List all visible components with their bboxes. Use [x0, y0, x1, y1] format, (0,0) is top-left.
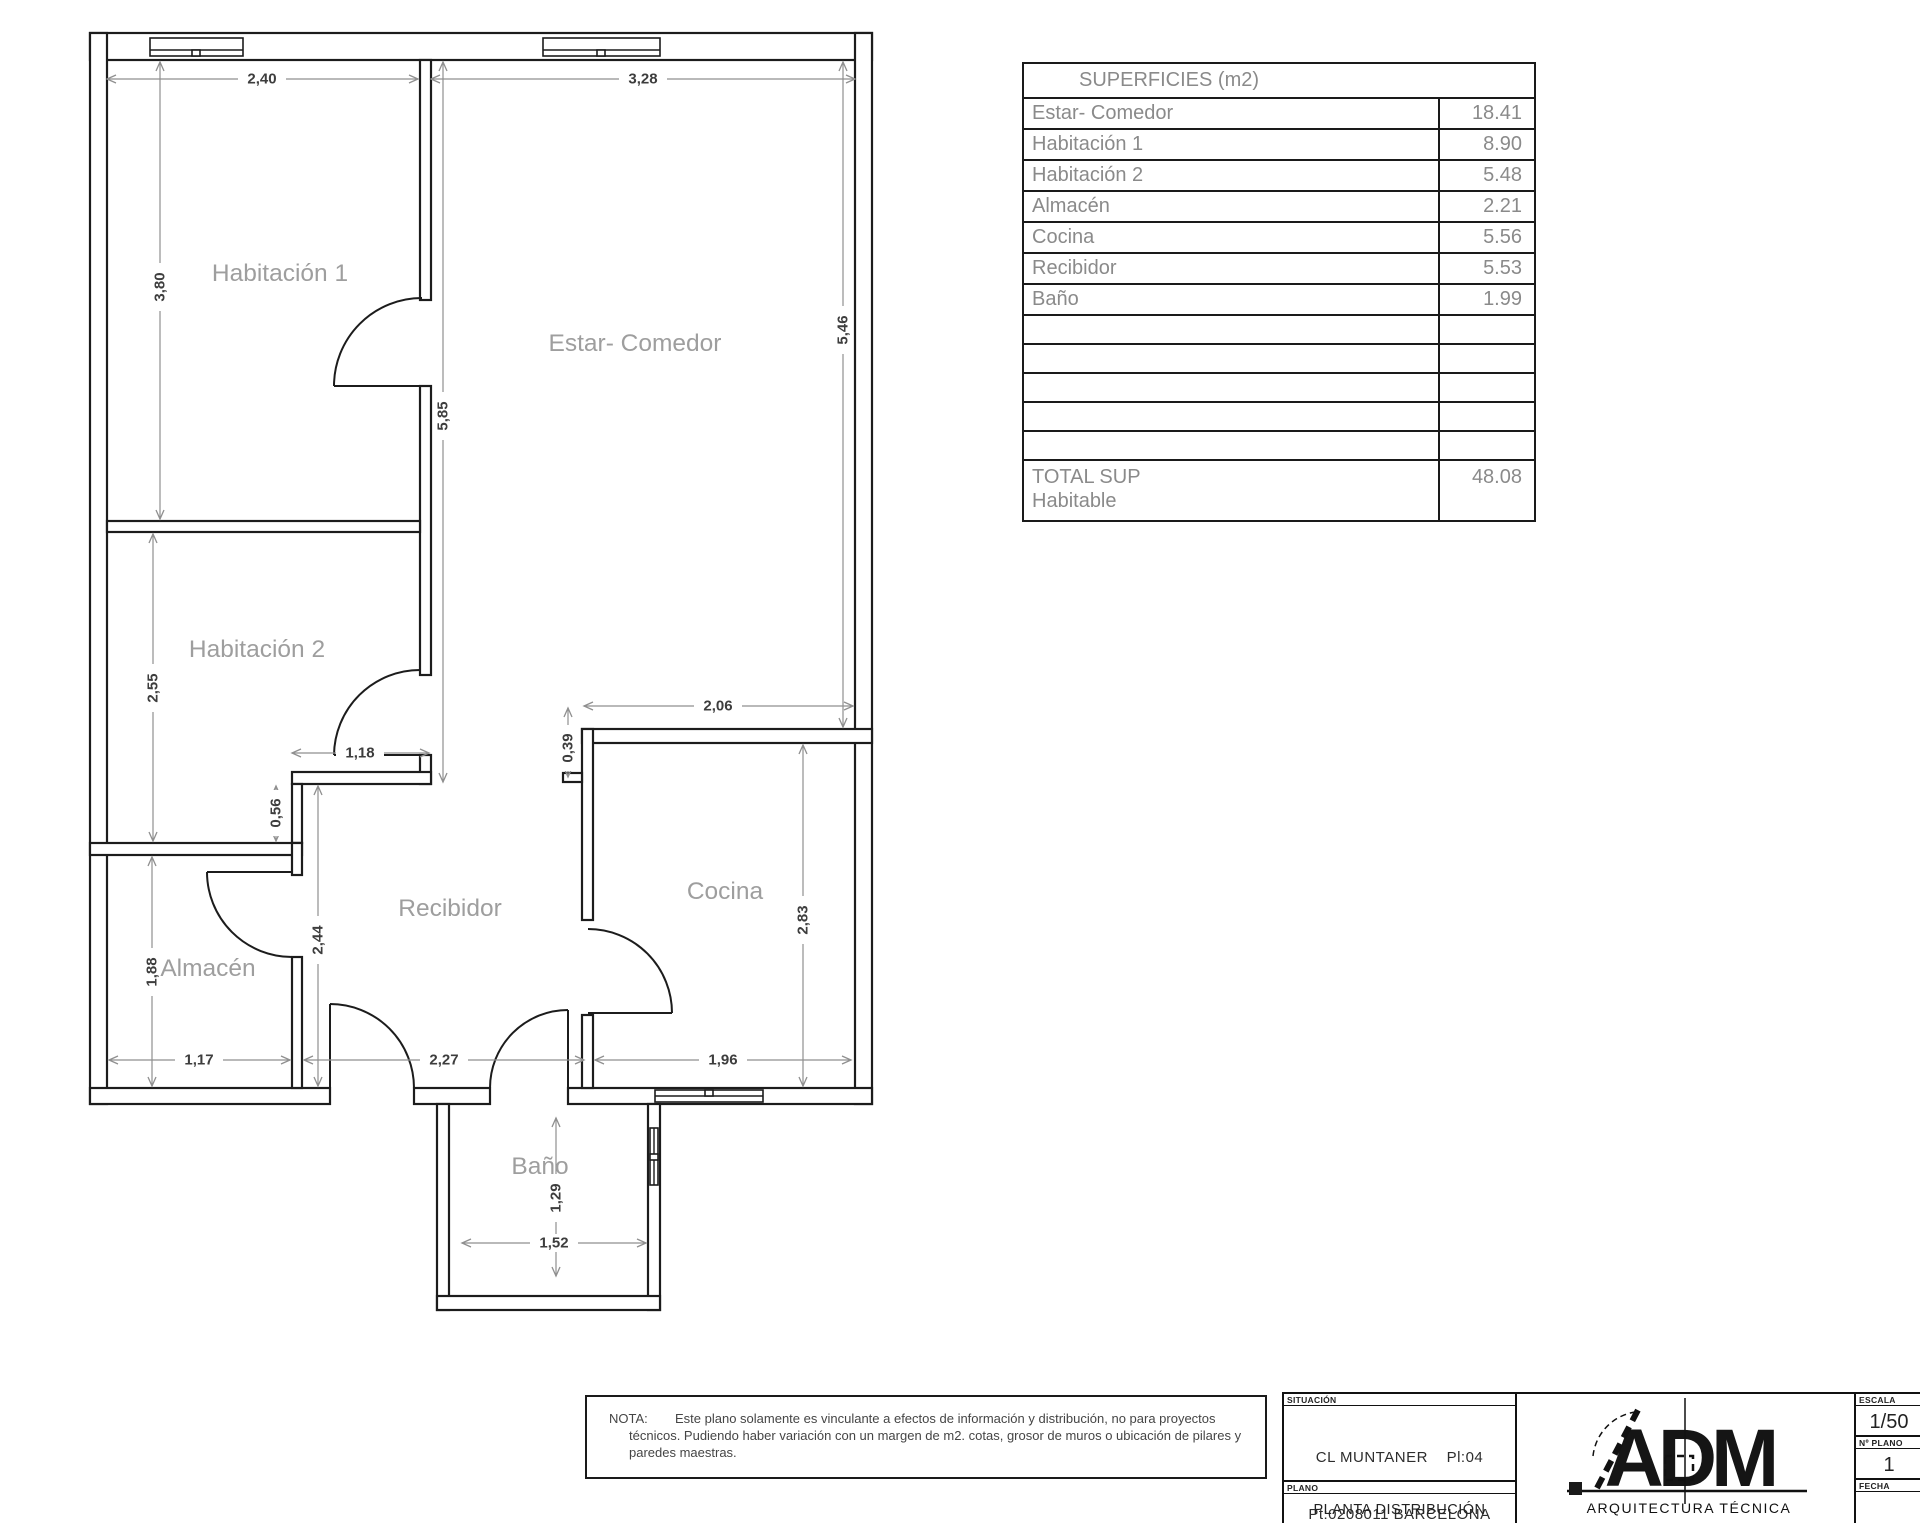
- dimension: 2,06: [584, 697, 853, 715]
- door-habitacion1: [334, 298, 422, 386]
- escala-label: ESCALA: [1856, 1394, 1920, 1406]
- svg-text:0,56: 0,56: [268, 798, 285, 827]
- svg-text:5,46: 5,46: [835, 315, 852, 344]
- svg-text:0,39: 0,39: [560, 733, 577, 762]
- situacion-label: SITUACIÓN: [1284, 1394, 1515, 1406]
- exterior-walls: [90, 33, 872, 1310]
- window: [543, 38, 660, 56]
- svg-text:3,80: 3,80: [152, 272, 169, 301]
- table-row: Recibidor5.53: [1024, 254, 1534, 285]
- window: [655, 1090, 763, 1102]
- company-logo: ADM ARQUITECTURA TÉCNICA: [1517, 1394, 1856, 1523]
- dimension: 1,18: [292, 744, 429, 762]
- svg-text:1,17: 1,17: [184, 1052, 213, 1069]
- num-plano-value: 1: [1856, 1449, 1920, 1478]
- table-row-total: TOTAL SUPHabitable 48.08: [1024, 461, 1534, 520]
- dimension: 5,85: [434, 62, 452, 782]
- svg-text:1,29: 1,29: [548, 1183, 565, 1212]
- room-label: Cocina: [687, 878, 764, 905]
- room-label: Recibidor: [398, 895, 502, 922]
- note-box: NOTA: Este plano solamente es vinculante…: [585, 1395, 1267, 1479]
- door-almacen: [207, 872, 292, 957]
- dimension: 1,88: [143, 857, 161, 1086]
- adm-logo-icon: ADM ARQUITECTURA TÉCNICA: [1517, 1394, 1854, 1523]
- svg-text:1,88: 1,88: [144, 957, 161, 986]
- dimension: 1,29: [547, 1118, 565, 1276]
- floor-plan: 2,40 3,28 3,80 5,85 5,46 2,55 1,18 0,56 …: [0, 0, 960, 1340]
- num-plano-label: Nº PLANO: [1856, 1437, 1920, 1449]
- svg-text:2,83: 2,83: [795, 905, 812, 934]
- table-row-empty: [1024, 374, 1534, 403]
- room-label: Baño: [511, 1153, 568, 1180]
- dimension: 1,17: [109, 1051, 290, 1069]
- svg-text:2,40: 2,40: [247, 71, 276, 88]
- dimension: 2,55: [144, 534, 162, 841]
- note-line: paredes maestras.: [629, 1445, 737, 1460]
- dimension: 0,39: [559, 708, 577, 777]
- svg-text:2,55: 2,55: [145, 673, 162, 702]
- dimension: 3,28: [431, 70, 855, 88]
- fecha-value: [1856, 1492, 1920, 1521]
- room-labels: Habitación 1 Estar- Comedor Habitación 2…: [160, 260, 763, 1180]
- svg-text:5,85: 5,85: [435, 401, 452, 430]
- dimension: 1,96: [595, 1051, 851, 1069]
- table-row: Cocina5.56: [1024, 223, 1534, 254]
- svg-text:2,44: 2,44: [310, 925, 327, 955]
- note-label: NOTA:: [609, 1411, 648, 1426]
- table-row-empty: [1024, 403, 1534, 432]
- svg-text:2,06: 2,06: [703, 698, 732, 715]
- window: [150, 38, 243, 56]
- plano-label: PLANO: [1284, 1482, 1515, 1494]
- plano-section: PLANO PLANTA DISTRIBUCIÓN: [1284, 1480, 1515, 1518]
- svg-text:3,28: 3,28: [628, 71, 657, 88]
- table-row: Estar- Comedor18.41: [1024, 99, 1534, 130]
- door-entry: [330, 1004, 414, 1088]
- title-block: SITUACIÓN CL MUNTANER Pl:04 Pt:0208011 B…: [1282, 1392, 1920, 1523]
- dimension: 5,46: [834, 62, 852, 727]
- window: [650, 1128, 658, 1185]
- door-cocina: [588, 929, 672, 1013]
- dimension: 1,52: [462, 1234, 646, 1252]
- dimension: 2,40: [107, 70, 418, 88]
- note-line: Este plano solamente es vinculante a efe…: [675, 1411, 1216, 1426]
- door-bano: [490, 1010, 568, 1088]
- surfaces-table: SUPERFICIES (m2) Estar- Comedor18.41 Hab…: [1022, 62, 1536, 522]
- svg-text:1,96: 1,96: [708, 1052, 737, 1069]
- svg-text:1,18: 1,18: [345, 745, 374, 762]
- table-row-empty: [1024, 316, 1534, 345]
- interior-walls: [90, 60, 872, 1088]
- svg-text:2,27: 2,27: [429, 1052, 458, 1069]
- plano-value: PLANTA DISTRIBUCIÓN: [1284, 1494, 1515, 1518]
- svg-text:ARQUITECTURA TÉCNICA: ARQUITECTURA TÉCNICA: [1587, 1500, 1792, 1516]
- dimension: 2,83: [794, 745, 812, 1086]
- room-label: Almacén: [160, 955, 255, 982]
- table-row-empty: [1024, 432, 1534, 461]
- drawing-sheet: 2,40 3,28 3,80 5,85 5,46 2,55 1,18 0,56 …: [0, 0, 1920, 1523]
- fecha-label: FECHA: [1856, 1480, 1920, 1492]
- table-row: Almacén2.21: [1024, 192, 1534, 223]
- dimension: 2,27: [304, 1051, 584, 1069]
- door-habitacion2: [334, 670, 420, 755]
- room-label: Habitación 2: [189, 636, 325, 663]
- escala-value: 1/50: [1856, 1406, 1920, 1435]
- dimension: 3,80: [151, 62, 169, 519]
- dimension: 0,56: [267, 786, 285, 841]
- table-row: Habitación 25.48: [1024, 161, 1534, 192]
- table-row: Baño1.99: [1024, 285, 1534, 316]
- note-line: técnicos. Pudiendo haber variación con u…: [629, 1428, 1241, 1443]
- room-label: Estar- Comedor: [549, 330, 722, 357]
- svg-text:1,52: 1,52: [539, 1235, 568, 1252]
- table-row-empty: [1024, 345, 1534, 374]
- surfaces-table-title: SUPERFICIES (m2): [1024, 64, 1534, 99]
- dimension: 2,44: [309, 786, 327, 1086]
- table-row: Habitación 18.90: [1024, 130, 1534, 161]
- room-label: Habitación 1: [212, 260, 348, 287]
